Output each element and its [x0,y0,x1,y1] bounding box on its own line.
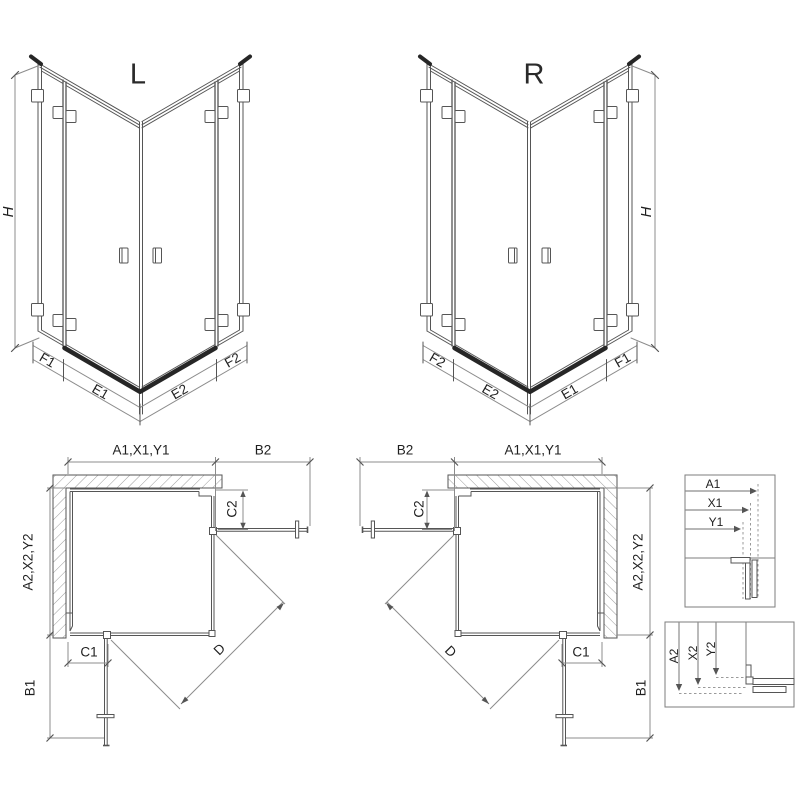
segment-dim-e2-left: E2 [169,381,191,402]
segment-dim-e2-right: E2 [480,381,502,402]
diagonal-dim-label-right: D [442,643,460,661]
depth-dim-label-right: A2,X2,Y2 [631,533,646,590]
width-dim-label-left: A1,X1,Y1 [112,443,169,458]
depth-dim-label-left: A2,X2,Y2 [21,533,36,590]
detail-width-frame [685,475,775,607]
detail-view-width: A1 X1 Y1 [685,475,775,607]
plan-linework-right [357,457,618,746]
iso-linework-left [12,57,251,426]
height-dim-label-left: H [0,206,17,217]
detail-dim-y1: Y1 [709,515,724,529]
door-dim-side-label-right: B1 [634,680,649,697]
segment-dim-f2-left: F2 [222,350,243,371]
fixed-dim-side-label-left: C2 [225,500,240,517]
detail-dim-x2: X2 [686,645,700,660]
detail-dim-a2: A2 [667,648,681,663]
iso-linework-right [420,57,659,426]
shower-enclosure-dimension-diagram: L H F1 E1 E2 F2 R H F2 E2 E1 F1 A1,X1,Y1… [0,0,800,800]
segment-dim-f1-right: F1 [612,350,633,371]
diagram-canvas: L H F1 E1 E2 F2 R H F2 E2 E1 F1 A1,X1,Y1… [0,0,800,800]
plan-linework-left [53,457,314,746]
segment-dim-f2-right: F2 [427,350,448,371]
detail-dim-y2: Y2 [704,641,718,656]
detail-view-depth: A2 X2 Y2 [665,622,794,707]
height-dim-label-right: H [638,206,655,217]
variant-title-right: R [524,59,545,91]
segment-dim-e1-left: E1 [90,381,112,402]
door-dim-side-label-left: B1 [23,680,38,697]
fixed-dim-bottom-label-right: C1 [572,645,589,660]
detail-dim-a1: A1 [706,477,721,491]
door-dim-top-label-left: B2 [255,443,272,458]
detail-dim-x1: X1 [708,496,723,510]
segment-dim-e1-right: E1 [559,381,581,402]
fixed-dim-bottom-label-left: C1 [80,645,97,660]
variant-title-left: L [130,59,146,91]
detail-depth-frame [665,622,794,707]
diagonal-dim-label-left: D [211,640,229,658]
door-dim-top-label-right: B2 [397,443,414,458]
fixed-dim-side-label-right: C2 [412,500,427,517]
width-dim-label-right: A1,X1,Y1 [504,443,561,458]
segment-dim-f1-left: F1 [37,350,58,371]
